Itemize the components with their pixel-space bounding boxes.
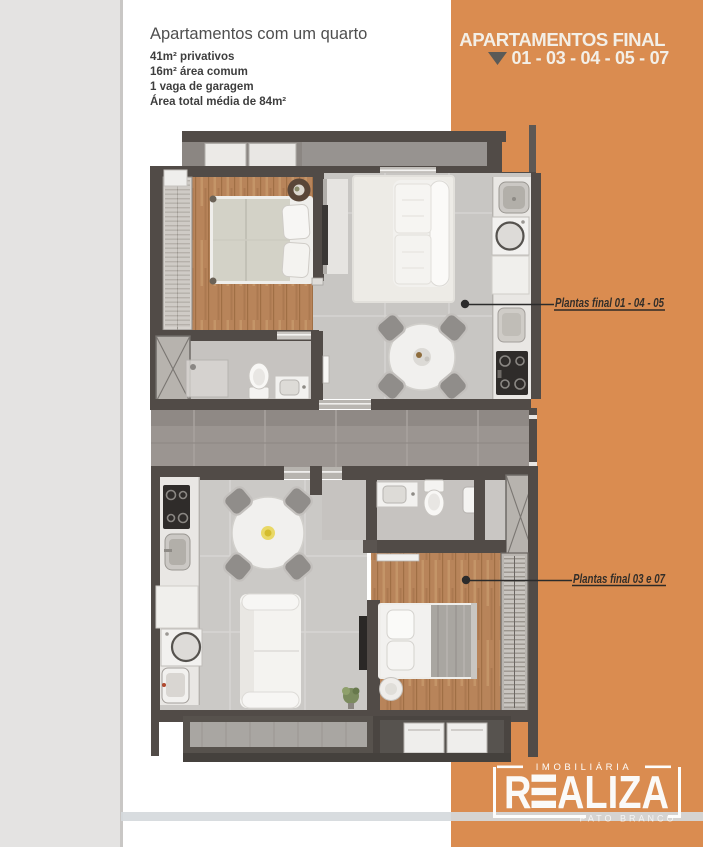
svg-text:Plantas final 01 - 04 - 05: Plantas final 01 - 04 - 05 bbox=[555, 296, 665, 310]
svg-text:PATO BRANCO: PATO BRANCO bbox=[579, 814, 676, 824]
svg-text:Plantas final 03 e 07: Plantas final 03 e 07 bbox=[573, 572, 666, 586]
svg-text:REALIZA: REALIZA bbox=[504, 766, 669, 818]
